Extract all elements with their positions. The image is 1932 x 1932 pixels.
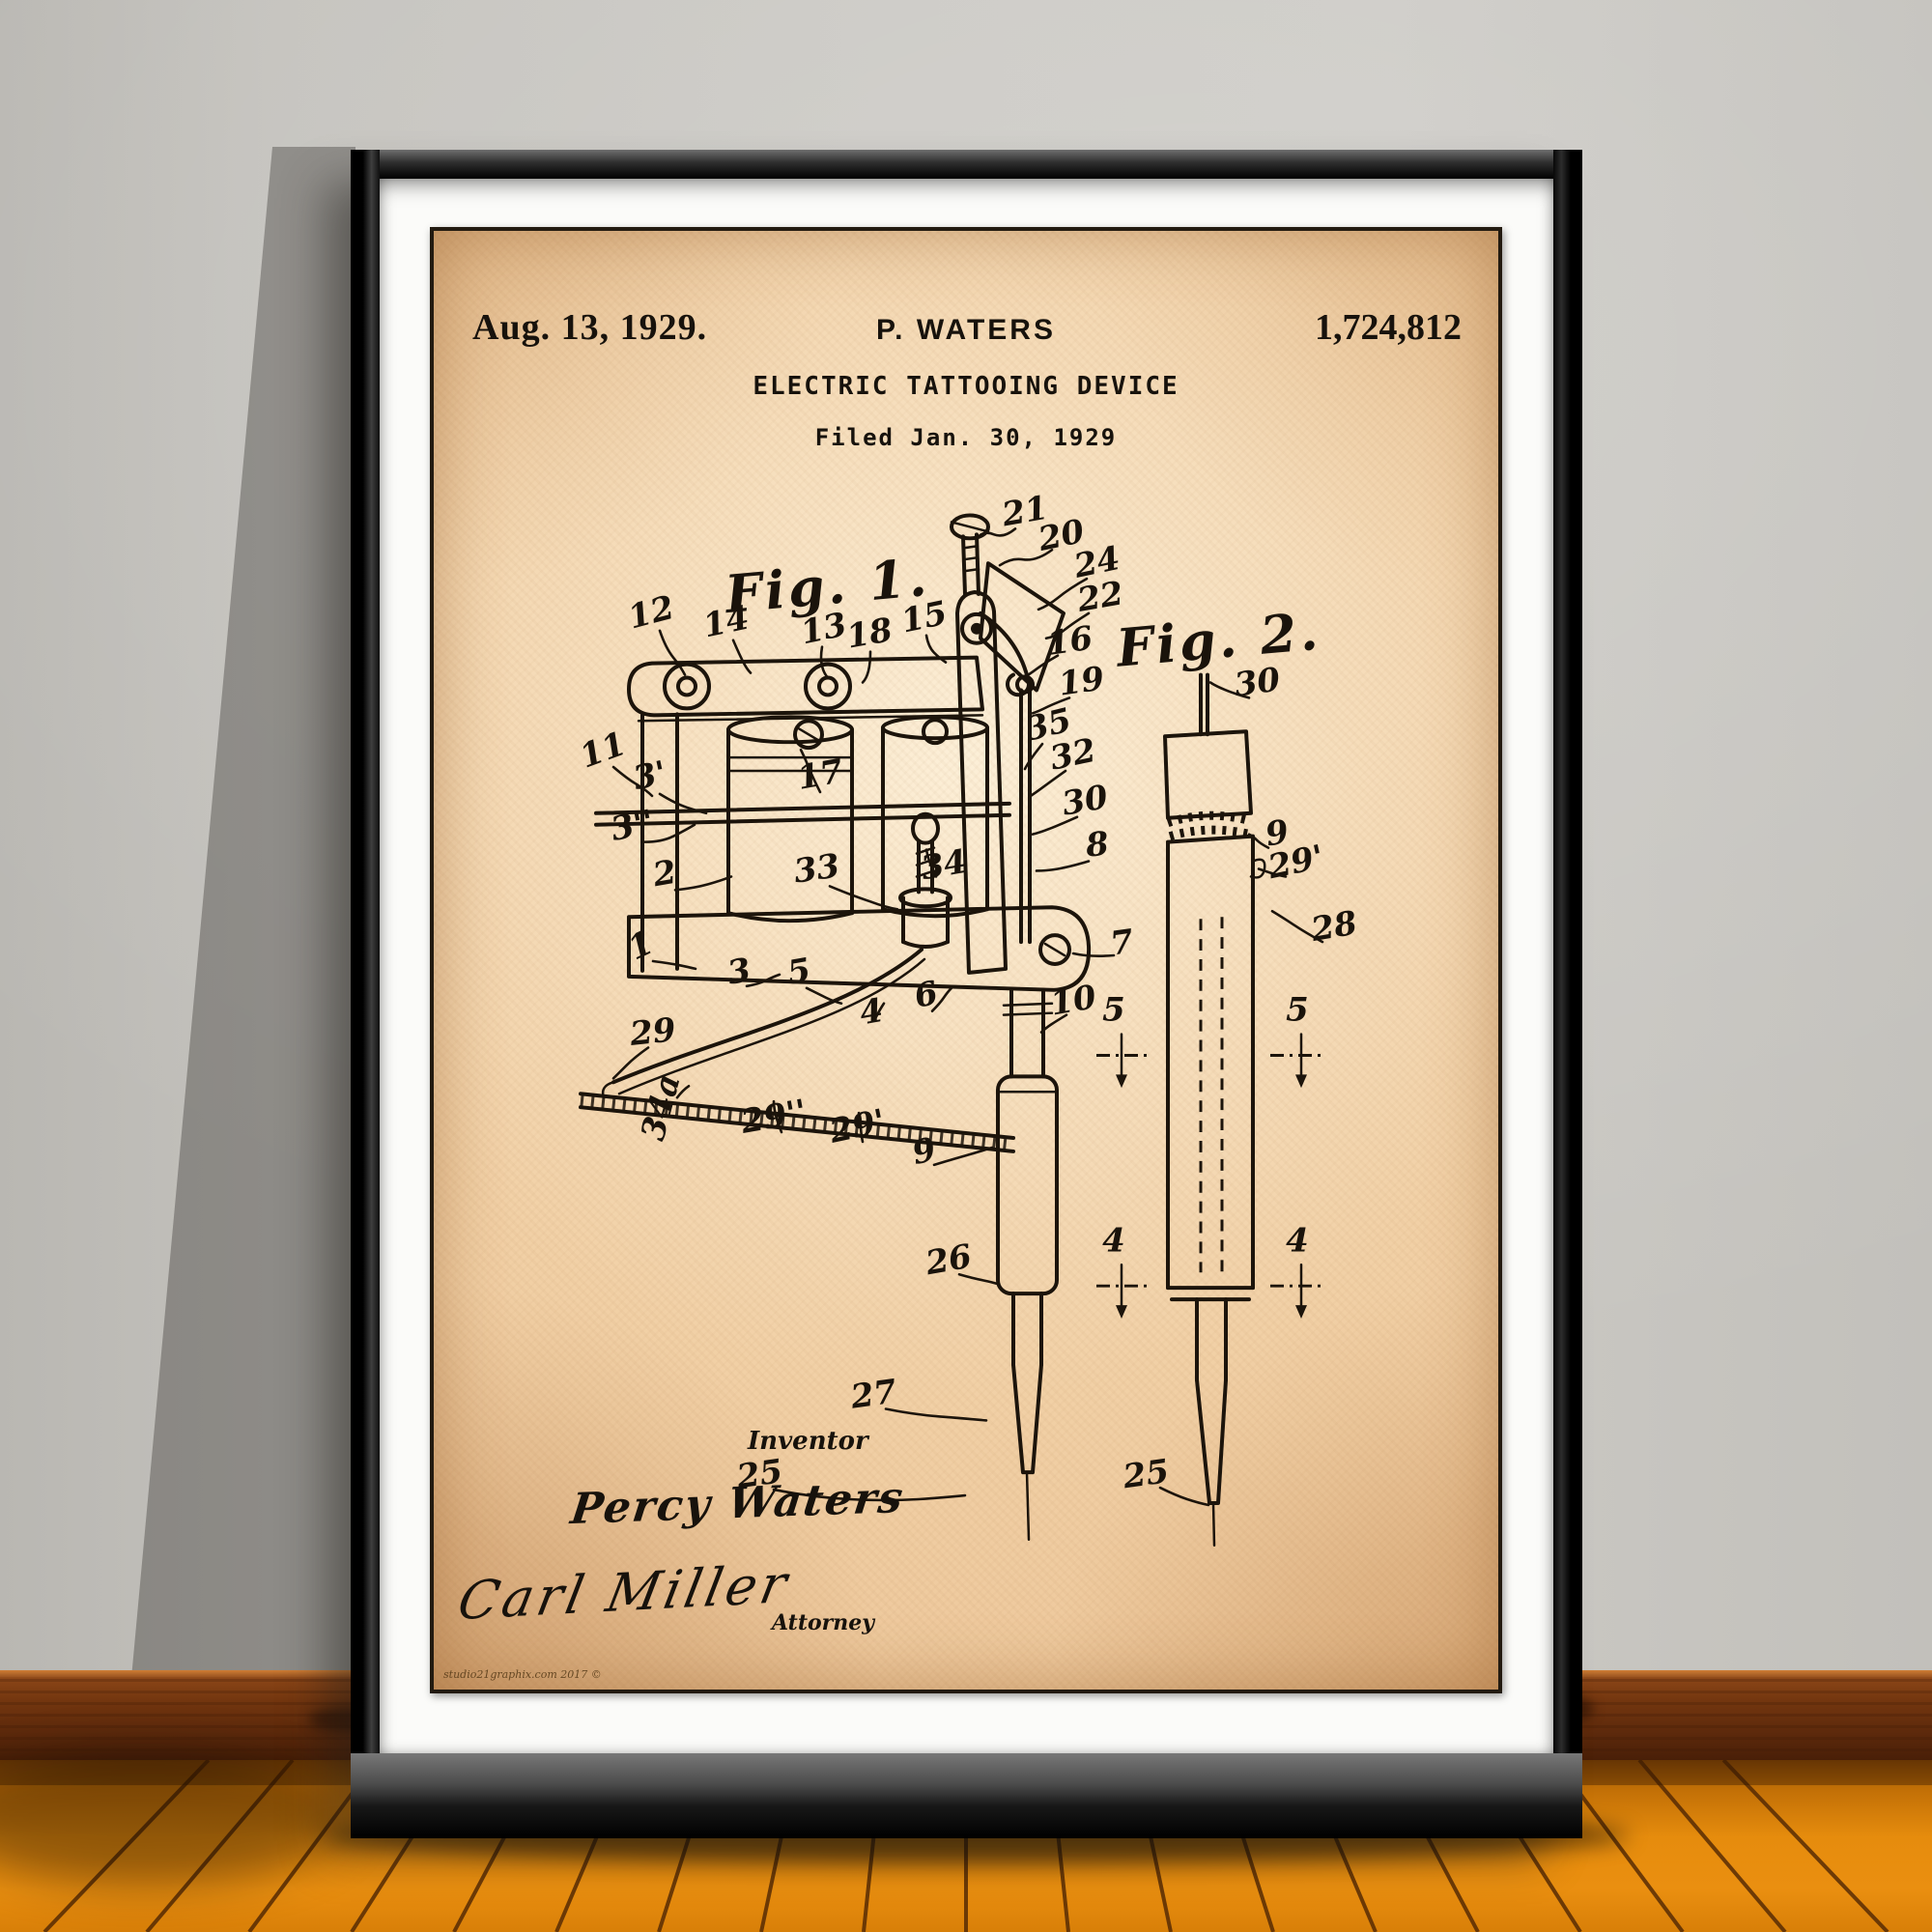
part-label-12: 12 [624, 587, 678, 637]
frame-rail-bottom [351, 1753, 1582, 1838]
part-label-5: 5 [1286, 990, 1309, 1029]
poster-frame: Aug. 13, 1929. P. WATERS 1,724,812 ELECT… [351, 150, 1582, 1838]
part-label-34a: 34a [633, 1070, 688, 1145]
part-label-9: 9 [909, 1129, 939, 1172]
part-label-4: 4 [1102, 1220, 1125, 1259]
part-label-3: 3 [724, 950, 753, 991]
part-label-29: 29 [627, 1009, 677, 1053]
part-label-17: 17 [794, 751, 846, 797]
part-label-13: 13 [797, 605, 850, 652]
part-label-27: 27 [847, 1372, 899, 1416]
part-label-22: 22 [1073, 573, 1126, 619]
part-label-29'': 29'' [737, 1092, 810, 1141]
frame-rail-right [1553, 150, 1582, 1838]
part-label-6: 6 [911, 973, 941, 1015]
part-label-11: 11 [575, 724, 631, 776]
part-label-14: 14 [699, 598, 753, 645]
part-label-15: 15 [897, 593, 951, 640]
framed-patent-poster-scene: Aug. 13, 1929. P. WATERS 1,724,812 ELECT… [0, 0, 1932, 1932]
part-label-28: 28 [1307, 903, 1360, 950]
part-label-30: 30 [1232, 660, 1283, 704]
patent-paper: Aug. 13, 1929. P. WATERS 1,724,812 ELECT… [430, 227, 1502, 1693]
frame-rail-left [351, 150, 380, 1838]
part-label-32: 32 [1046, 730, 1099, 778]
patent-drawing: Fig. 1.Fig. 2. 2120242216191214131815113… [434, 231, 1498, 1682]
part-label-10: 10 [1047, 977, 1099, 1023]
inventor-caption: Inventor [748, 1427, 868, 1456]
part-label-8: 8 [1083, 824, 1111, 865]
part-label-34: 34 [918, 841, 970, 887]
part-label-7: 7 [1108, 922, 1136, 963]
part-label-2: 2 [649, 852, 679, 895]
watermark: studio21graphix.com 2017 © [443, 1668, 602, 1681]
figure-label: Fig. 2. [1112, 600, 1322, 679]
leader-lines [613, 528, 1322, 1505]
part-label-5: 5 [784, 950, 813, 991]
part-label-5: 5 [1102, 990, 1125, 1029]
part-label-4: 4 [1286, 1220, 1309, 1259]
figure-2-tube [1096, 675, 1326, 1546]
part-label-30: 30 [1059, 777, 1111, 823]
frame-rail-top [351, 150, 1582, 179]
part-label-16: 16 [1044, 618, 1094, 663]
mat-board: Aug. 13, 1929. P. WATERS 1,724,812 ELECT… [380, 179, 1553, 1753]
part-label-25: 25 [1120, 1451, 1171, 1495]
part-label-18: 18 [843, 610, 895, 655]
part-label-33: 33 [791, 846, 841, 891]
part-label-19: 19 [1056, 659, 1106, 703]
part-label-4: 4 [857, 990, 886, 1032]
part-label-26: 26 [922, 1236, 975, 1283]
part-label-29': 29' [825, 1101, 889, 1151]
part-label-3': 3' [630, 753, 670, 797]
attorney-caption: Attorney [772, 1610, 874, 1635]
